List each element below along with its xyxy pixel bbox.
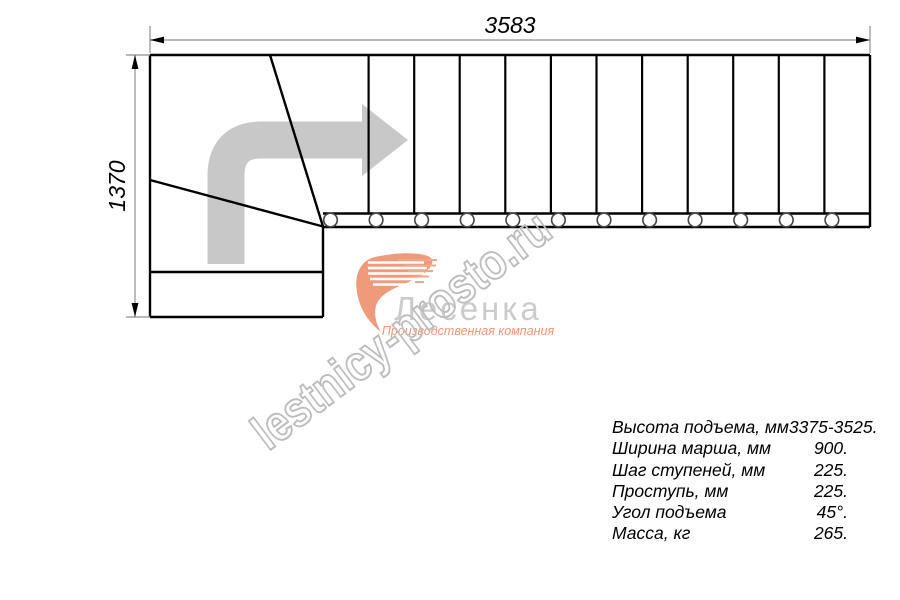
spec-row: Проступь, мм 225. (612, 481, 848, 502)
stair-drawing-canvas: 3583 1370 Лесенка Производственная компа… (0, 0, 900, 600)
spec-row: Масса, кг 265. (612, 523, 848, 544)
direction-arrow-icon (226, 104, 408, 264)
spec-row: Высота подъема, мм 3375-3525. (612, 417, 848, 438)
spec-value: 900. (814, 438, 848, 459)
spec-label: Проступь, мм (612, 481, 728, 502)
spec-label: Угол подъема (612, 502, 727, 523)
dimension-height-label: 1370 (104, 141, 130, 231)
spec-value: 3375-3525. (789, 417, 878, 438)
spec-label: Шаг ступеней, мм (612, 460, 765, 481)
spec-value: 225. (814, 460, 848, 481)
spec-value: 225. (814, 481, 848, 502)
spec-value: 265. (814, 523, 848, 544)
baluster-circles (324, 213, 839, 227)
spec-row: Угол подъема 45°. (612, 502, 848, 523)
dimension-width-label: 3583 (460, 12, 560, 39)
spec-row: Ширина марша, мм 900. (612, 438, 848, 459)
spec-label: Ширина марша, мм (612, 438, 771, 459)
spec-label: Масса, кг (612, 523, 690, 544)
spec-value: 45°. (817, 502, 848, 523)
spec-table: Высота подъема, мм 3375-3525. Ширина мар… (612, 417, 848, 545)
spec-row: Шаг ступеней, мм 225. (612, 460, 848, 481)
spec-label: Высота подъема, мм (612, 417, 789, 438)
step-lines (369, 55, 825, 214)
